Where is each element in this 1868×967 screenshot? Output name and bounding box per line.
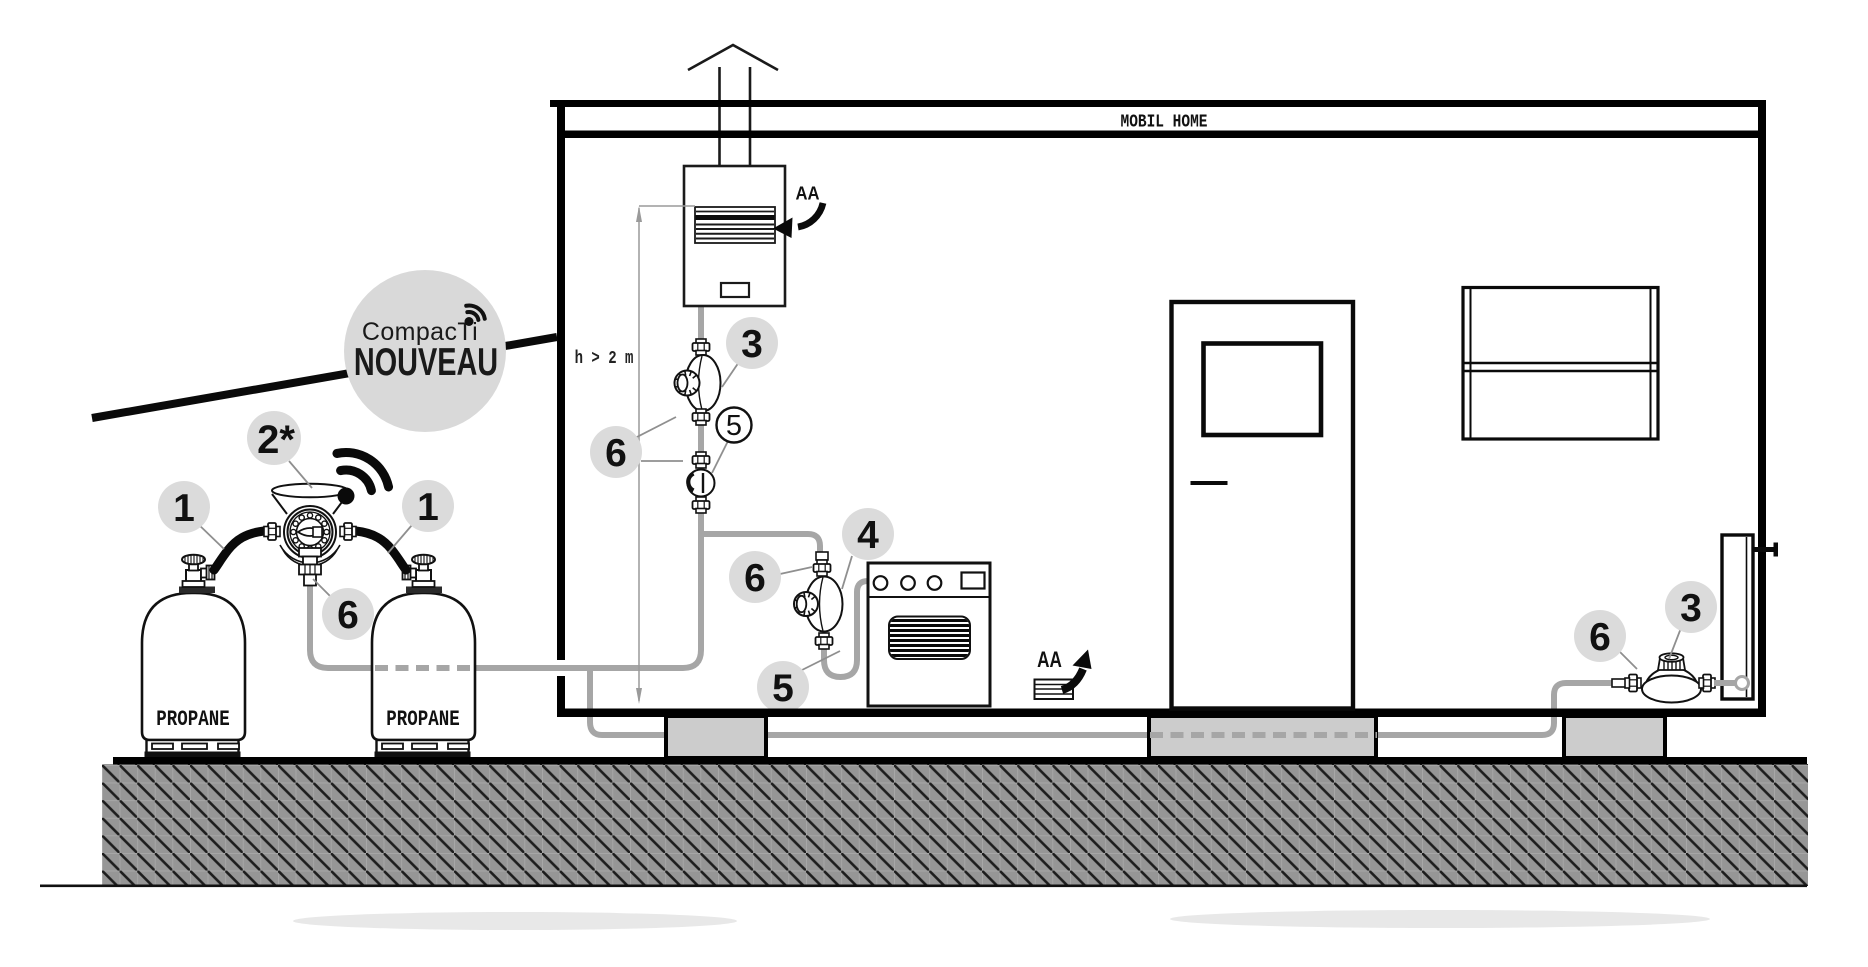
svg-text:5: 5 xyxy=(726,410,742,442)
svg-text:6: 6 xyxy=(605,432,627,475)
svg-text:PROPANE: PROPANE xyxy=(156,707,230,731)
svg-text:1: 1 xyxy=(417,486,439,529)
svg-text:AA: AA xyxy=(795,183,819,204)
svg-text:6: 6 xyxy=(744,557,766,600)
svg-text:5: 5 xyxy=(772,667,794,710)
svg-text:AA: AA xyxy=(1037,648,1062,673)
svg-text:3: 3 xyxy=(741,323,763,366)
svg-text:h > 2 m: h > 2 m xyxy=(575,347,634,368)
svg-text:2*: 2* xyxy=(257,418,295,462)
svg-text:NOUVEAU: NOUVEAU xyxy=(354,341,498,384)
svg-text:3: 3 xyxy=(1680,587,1702,630)
svg-text:1: 1 xyxy=(173,487,195,530)
svg-text:MOBIL HOME: MOBIL HOME xyxy=(1121,112,1208,133)
svg-text:PROPANE: PROPANE xyxy=(386,707,460,731)
svg-text:6: 6 xyxy=(337,594,359,637)
svg-text:6: 6 xyxy=(1589,616,1611,659)
svg-text:4: 4 xyxy=(857,514,879,557)
